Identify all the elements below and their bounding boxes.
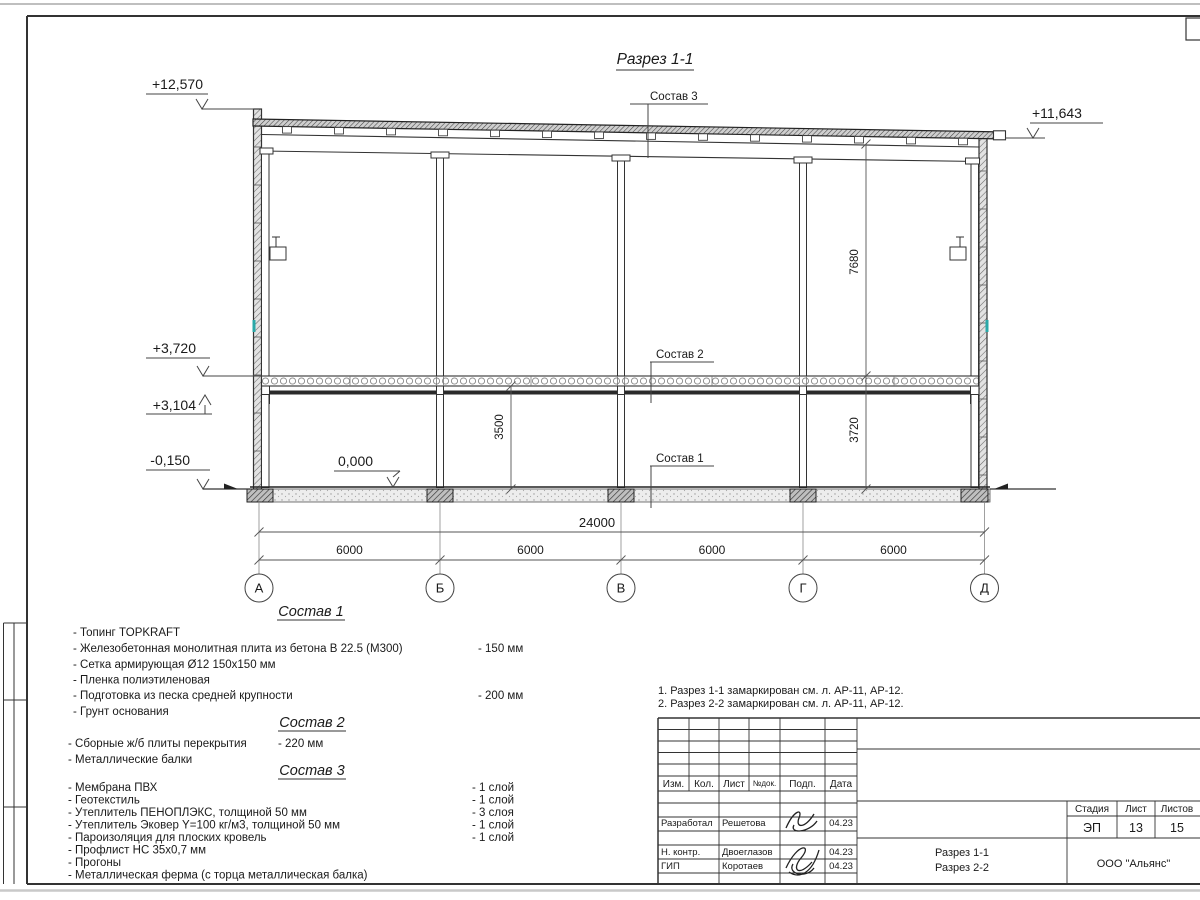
- roof-eaves-cap: [994, 131, 1006, 140]
- grade-mark-right: [994, 484, 1008, 490]
- tb-col-kol: Кол.: [694, 779, 714, 790]
- tb-row2-date: 04.23: [829, 847, 853, 858]
- drawing-sheet: +12,570 +11,643 +3,720 +3,104 -0,150: [0, 0, 1200, 900]
- elevation-mark-beam-bottom: +3,104: [146, 395, 212, 414]
- note-1: 1. Разрез 1-1 замаркирован см. л. АР-11,…: [658, 685, 904, 697]
- tb-row1-date: 04.23: [829, 818, 853, 829]
- elevation-mark-floor-zero: 0,000: [334, 453, 400, 487]
- axis-label-v: В: [617, 581, 626, 596]
- comp2-item-1-value: - 220 мм: [278, 738, 323, 750]
- elevation-mark-parapet: +12,570: [146, 76, 254, 109]
- comp3-item-5: - Пароизоляция для плоских кровель: [68, 832, 267, 844]
- note-2: 2. Разрез 2-2 замаркирован см. л. АР-11,…: [658, 698, 904, 710]
- tb-row2-name: Двоеглазов: [722, 847, 773, 858]
- callout-sostav3: Состав 3: [650, 91, 698, 103]
- comp1-item-5-value: - 200 мм: [478, 690, 523, 702]
- comp2-title: Состав 2: [279, 715, 344, 731]
- elevation-mark-ground: -0,150: [146, 452, 210, 489]
- axis-extension-lines: [259, 502, 985, 574]
- tb-sheet-value: 13: [1129, 821, 1143, 835]
- comp3-item-2: - Геотекстиль: [68, 795, 140, 807]
- lower-columns: [262, 395, 979, 488]
- floor-slab-band: [262, 376, 979, 386]
- comp3-item-1-value: - 1 слой: [472, 782, 514, 794]
- axis-bubbles: А Б В Г Д: [245, 574, 999, 602]
- callout-sostav1: Состав 1: [656, 453, 704, 465]
- comp1-item-6: - Грунт основания: [73, 706, 169, 718]
- comp3-item-4-value: - 1 слой: [472, 820, 514, 832]
- elevation-mark-eaves: +11,643: [1005, 105, 1103, 138]
- comp1-item-4: - Пленка полиэтиленовая: [73, 675, 210, 687]
- tb-sheet-label: Лист: [1125, 804, 1147, 815]
- tb-stage-value: ЭП: [1083, 821, 1101, 835]
- dim-storey-height: 3720: [849, 417, 861, 443]
- elevation-slab-top-value: +3,720: [153, 340, 196, 356]
- section-title: Разрез 1-1: [616, 51, 694, 70]
- tb-row3-name: Коротаев: [722, 861, 763, 872]
- comp3-item-6: - Профлист НС 35х0,7 мм: [68, 845, 206, 857]
- comp1-item-1: - Топинг TOPKRAFT: [73, 627, 180, 639]
- dim-bay-2: 6000: [517, 543, 544, 557]
- grade-mark-left: [224, 484, 238, 490]
- elevation-eaves-value: +11,643: [1032, 105, 1082, 121]
- tb-row1-name: Решетова: [722, 818, 766, 829]
- title-block: Изм. Кол. Лист №док. Подп. Дата Разработ…: [658, 718, 1200, 884]
- right-wall: [979, 133, 987, 489]
- axis-label-a: А: [255, 581, 264, 596]
- right-wall-marker: [986, 320, 989, 332]
- tb-row1-role: Разработал: [661, 818, 713, 829]
- comp3-item-8: - Металлическая ферма (с торца металличе…: [68, 870, 368, 882]
- signature-strokes: [786, 812, 819, 875]
- elevation-mark-slab-top: +3,720: [146, 340, 262, 376]
- dim-bay-3: 6000: [699, 543, 726, 557]
- dim-truss-height: 7680: [849, 249, 861, 275]
- comp3-item-1: - Мембрана ПВХ: [68, 782, 158, 794]
- tb-row3-role: ГИП: [661, 861, 680, 872]
- elevation-parapet-value: +12,570: [152, 76, 203, 92]
- elevation-ground-value: -0,150: [150, 452, 190, 468]
- tb-stage-label: Стадия: [1075, 804, 1109, 815]
- tb-company: ООО "Альянс": [1097, 858, 1171, 870]
- notes: 1. Разрез 1-1 замаркирован см. л. АР-11,…: [658, 685, 904, 710]
- elevation-beam-bottom-value: +3,104: [153, 397, 196, 413]
- composition-callouts: Состав 3 Состав 2 Состав 1: [630, 91, 714, 508]
- composition-lists: Состав 1 - Топинг TOPKRAFT - Железобетон…: [68, 604, 523, 882]
- comp2-item-1: - Сборные ж/б плиты перекрытия: [68, 738, 247, 750]
- tb-col-list: Лист: [723, 779, 745, 790]
- tb-row3-date: 04.23: [829, 861, 853, 872]
- section-title-text: Разрез 1-1: [617, 51, 694, 68]
- comp3-item-7: - Прогоны: [68, 857, 121, 869]
- comp1-item-5: - Подготовка из песка средней крупности: [73, 690, 293, 702]
- dim-total: 24000: [579, 515, 615, 530]
- callout-sostav2: Состав 2: [656, 349, 704, 361]
- dim-bay-4: 6000: [880, 543, 907, 557]
- axis-label-d: Д: [980, 581, 989, 596]
- tb-col-izm: Изм.: [663, 779, 684, 790]
- left-wall-marker: [253, 320, 256, 332]
- tb-col-data: Дата: [830, 779, 853, 790]
- comp3-item-4: - Утеплитель Эковер Y=100 кг/м3, толщино…: [68, 820, 340, 832]
- dim-clear-height: 3500: [494, 414, 506, 440]
- comp1-item-2: - Железобетонная монолитная плита из бет…: [73, 643, 403, 655]
- tb-col-podp: Подп.: [789, 779, 816, 790]
- comp3-item-2-value: - 1 слой: [472, 795, 514, 807]
- comp1-item-2-value: - 150 мм: [478, 643, 523, 655]
- comp3-item-3-value: - 3 слоя: [472, 807, 514, 819]
- tb-doc-line1: Разрез 1-1: [935, 847, 989, 859]
- dim-bay-1: 6000: [336, 543, 363, 557]
- upper-columns: [260, 148, 980, 376]
- tb-doc-line2: Разрез 2-2: [935, 862, 989, 874]
- axis-label-b: Б: [436, 581, 445, 596]
- tb-col-ndok: №док.: [753, 779, 776, 788]
- comp1-item-3: - Сетка армирующая Ø12 150х150 мм: [73, 659, 276, 671]
- tb-row2-role: Н. контр.: [661, 847, 700, 858]
- sheet-canvas: +12,570 +11,643 +3,720 +3,104 -0,150: [0, 0, 1200, 900]
- comp3-title: Состав 3: [279, 763, 344, 779]
- comp2-item-2: - Металлические балки: [68, 754, 192, 766]
- section-drawing: [203, 109, 1056, 502]
- elevation-floor-zero-value: 0,000: [338, 453, 373, 469]
- tb-sheets-value: 15: [1170, 821, 1184, 835]
- left-margin-boxes: [4, 623, 28, 884]
- tb-sheets-label: Листов: [1161, 804, 1194, 815]
- comp1-title: Состав 1: [278, 604, 343, 620]
- axis-label-g: Г: [799, 581, 806, 596]
- corner-stamp-box: [1186, 18, 1200, 40]
- comp3-item-3: - Утеплитель ПЕНОПЛЭКС, толщиной 50 мм: [68, 807, 307, 819]
- comp3-item-5-value: - 1 слой: [472, 832, 514, 844]
